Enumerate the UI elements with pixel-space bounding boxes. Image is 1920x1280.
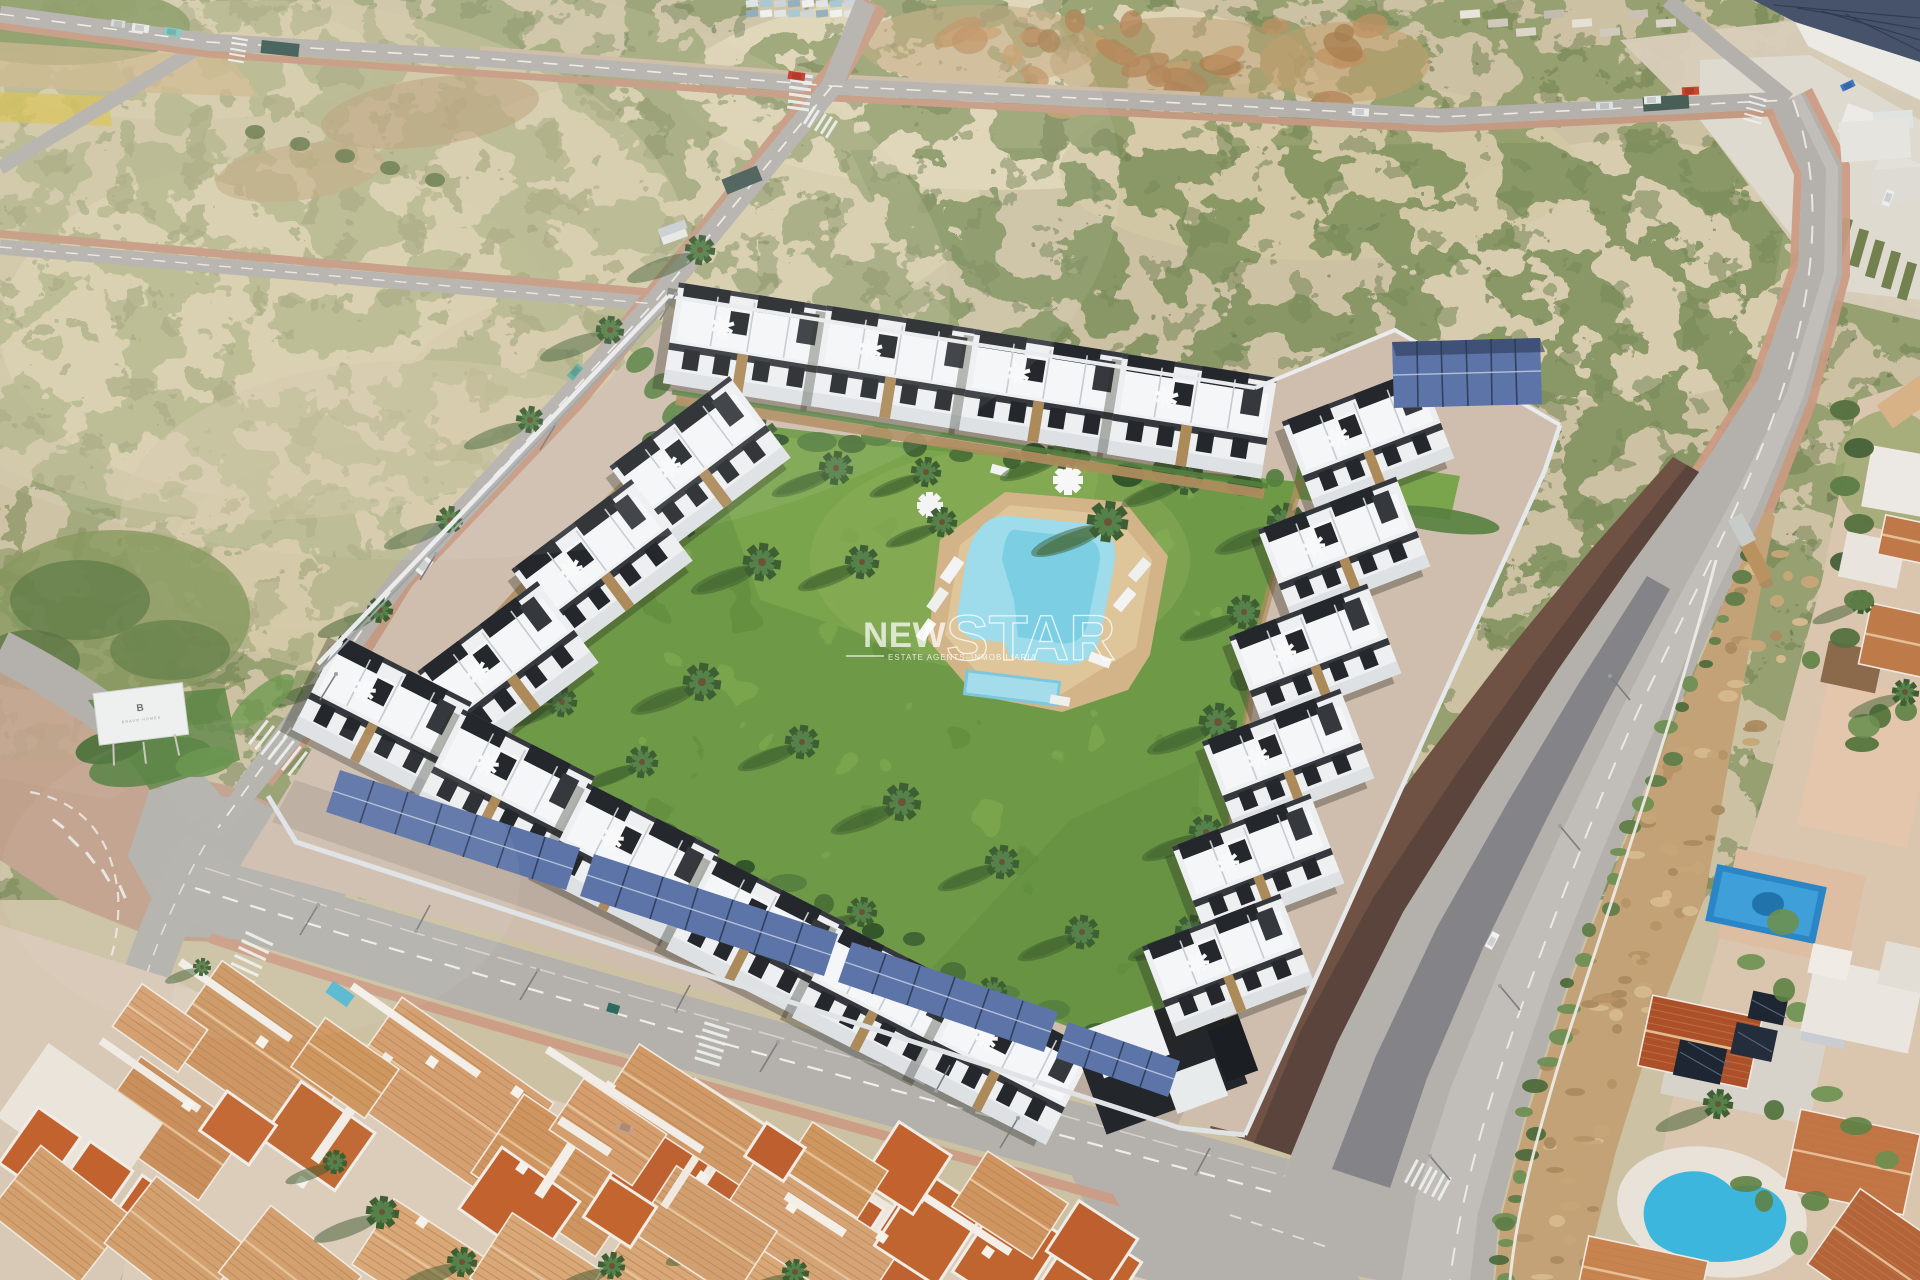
svg-text:B: B: [136, 703, 145, 715]
svg-text:ESTATE AGENTS–INMOBILIARIA: ESTATE AGENTS–INMOBILIARIA: [888, 653, 1037, 662]
svg-text:NEW: NEW: [863, 616, 946, 655]
svg-text:STAR: STAR: [946, 602, 1115, 674]
